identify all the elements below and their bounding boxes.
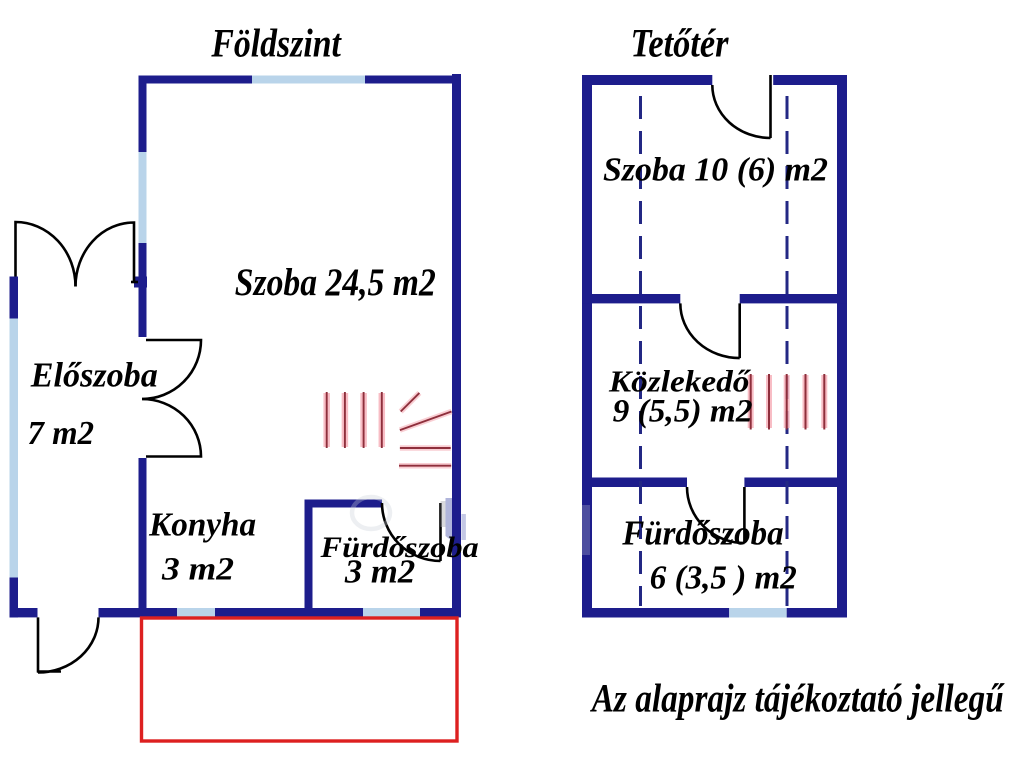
svg-text:Konyha: Konyha bbox=[148, 507, 256, 544]
svg-text:3 m2: 3 m2 bbox=[161, 552, 234, 588]
svg-text:Előszoba: Előszoba bbox=[30, 355, 158, 394]
svg-text:Szoba 10 (6) m2: Szoba 10 (6) m2 bbox=[603, 151, 828, 188]
svg-text:6 (3,5 ) m2: 6 (3,5 ) m2 bbox=[650, 560, 797, 597]
svg-text:Szoba 24,5 m2: Szoba 24,5 m2 bbox=[235, 261, 436, 304]
svg-text:Az alaprajz tájékoztató jelleg: Az alaprajz tájékoztató jellegű bbox=[589, 676, 1005, 721]
svg-text:3 m2: 3 m2 bbox=[344, 554, 415, 591]
svg-text:7 m2: 7 m2 bbox=[28, 415, 95, 452]
svg-text:Tetőtér: Tetőtér bbox=[631, 21, 729, 66]
svg-text:Fürdőszoba: Fürdőszoba bbox=[621, 514, 783, 553]
svg-text:Földszint: Földszint bbox=[211, 21, 343, 66]
svg-text:9 (5,5) m2: 9 (5,5) m2 bbox=[613, 394, 753, 430]
